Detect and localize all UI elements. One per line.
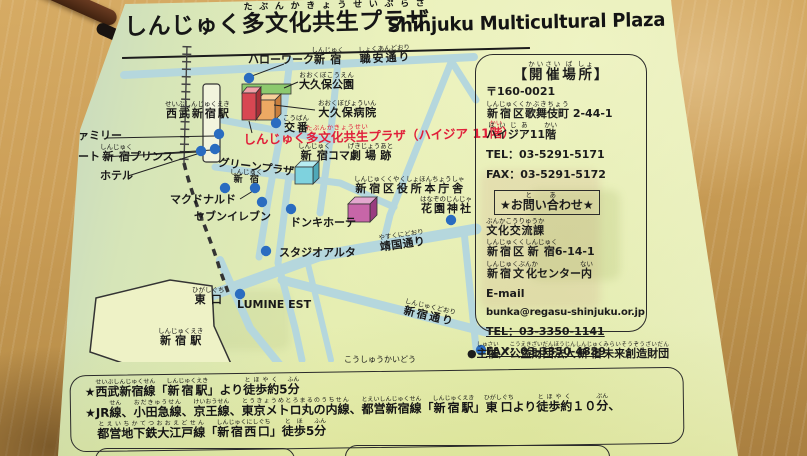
email-address: bunka@regasu-shinjuku.or.jp: [486, 307, 637, 320]
map-area: ハローワーク新宿しんじゅく職安通りしょくあんどおり大久保公園おおくぼこうえん大久…: [62, 30, 494, 362]
venue-tel: TEL：03-5291-5171: [486, 148, 637, 162]
inquiry-heading: ★お問とい合あわせ★: [494, 190, 600, 215]
access-box: ★西武新宿線せいぶしんじゅくせん「新宿駅しんじゅくえき」より徒歩約とほやく5分ふ…: [69, 367, 684, 453]
postal-code: 〒160-0021: [486, 85, 637, 99]
inquiry-address-line2: 新宿文化しんじゅくぶんかセンター内ない: [486, 260, 637, 281]
label-koma-theater-site: 新宿しんじゅくコマ劇場跡げきじょうあと: [298, 142, 393, 162]
label-shinjuku-dori: 新宿通りしんじゅくどおり: [402, 297, 457, 328]
label-family-mart-line1: ファミリー: [67, 130, 122, 142]
inquiry-tel: TEL：03-3350-1141: [486, 325, 637, 339]
photo-of-flyer: { "title": { "ja_segments": [ {"t":"しんじゅ…: [0, 0, 807, 456]
label-green-plaza-shinjuku: 新宿しんじゅく: [230, 168, 263, 185]
label-hellowork-shinjuku: ハローワーク新宿しんじゅく: [248, 46, 344, 66]
inquiry-department: 文化交流課ぶんかこうりゅうか: [486, 217, 637, 238]
partial-box-1: [95, 448, 295, 456]
label-seibu-shinjuku-station: 西武新宿駅せいぶしんじゅくえき: [165, 100, 230, 120]
venue-address-line1: 新宿区しんじゅくく歌舞伎町かぶきちょう 2-44-1: [486, 100, 637, 121]
label-studio-alta: スタジオアルタ: [279, 247, 356, 259]
venue-heading: 【開かい催さい場ば所しょ】: [486, 60, 637, 84]
label-don-quijote: ドンキホーテ: [290, 217, 356, 229]
label-yasukuni-dori: 靖国通りやすくにどおり: [378, 228, 426, 254]
venue-fax: FAX：03-5291-5172: [486, 168, 637, 182]
inquiry-address-line1: 新宿区しんじゅくく新宿しんじゅく6-14-1: [486, 238, 637, 259]
label-hanazono-shrine: 花園神社はなぞのじんじゃ: [420, 195, 472, 215]
label-prince-hotel-line1: 新宿しんじゅくプリンス: [100, 143, 174, 163]
email-label: E-mail: [486, 287, 637, 301]
partial-box-2: [345, 445, 610, 456]
label-shokuan-dori: 職安通りしょくあんどおり: [358, 43, 411, 65]
label-east-exit: 東口ひがしぐち: [192, 286, 225, 306]
label-okubo-hospital: 大久保病院おおくぼびょういん: [318, 99, 377, 119]
organizer-line: ●主催しゅさい／公益財団法人こうえきざいだんほうじん新宿しんじゅく未来創造財団み…: [467, 342, 669, 361]
map-labels: ハローワーク新宿しんじゅく職安通りしょくあんどおり大久保公園おおくぼこうえん大久…: [62, 30, 494, 362]
label-ward-office: 新宿区役所本庁舎しんじゅくくやくしょほんちょうしゃ: [354, 175, 465, 195]
flyer-paper: しんじゅく多文化共生プラザたぶんかきょうせいぷらざ Shinjuku Multi…: [50, 0, 740, 456]
label-seven-eleven: セブンイレブン: [194, 211, 271, 223]
label-koshu-kaido: こうしゅうかいどう: [344, 356, 416, 364]
label-shinjuku-station: 新宿駅しんじゅくえき: [158, 327, 203, 347]
label-mcdonalds: マクドナルド: [170, 194, 236, 206]
label-prince-hotel-line2: ホテル: [100, 170, 133, 182]
label-family-mart-line2: マート: [67, 151, 100, 163]
label-lumine-est: LUMINE EST: [237, 299, 311, 311]
venue-address-line2: ハイジアはいじあ11階かい: [486, 121, 637, 142]
label-okubo-park: 大久保公園おおくぼこうえん: [299, 71, 354, 91]
venue-panel: 【開かい催さい場ば所しょ】 〒160-0021 新宿区しんじゅくく歌舞伎町かぶき…: [475, 54, 647, 332]
